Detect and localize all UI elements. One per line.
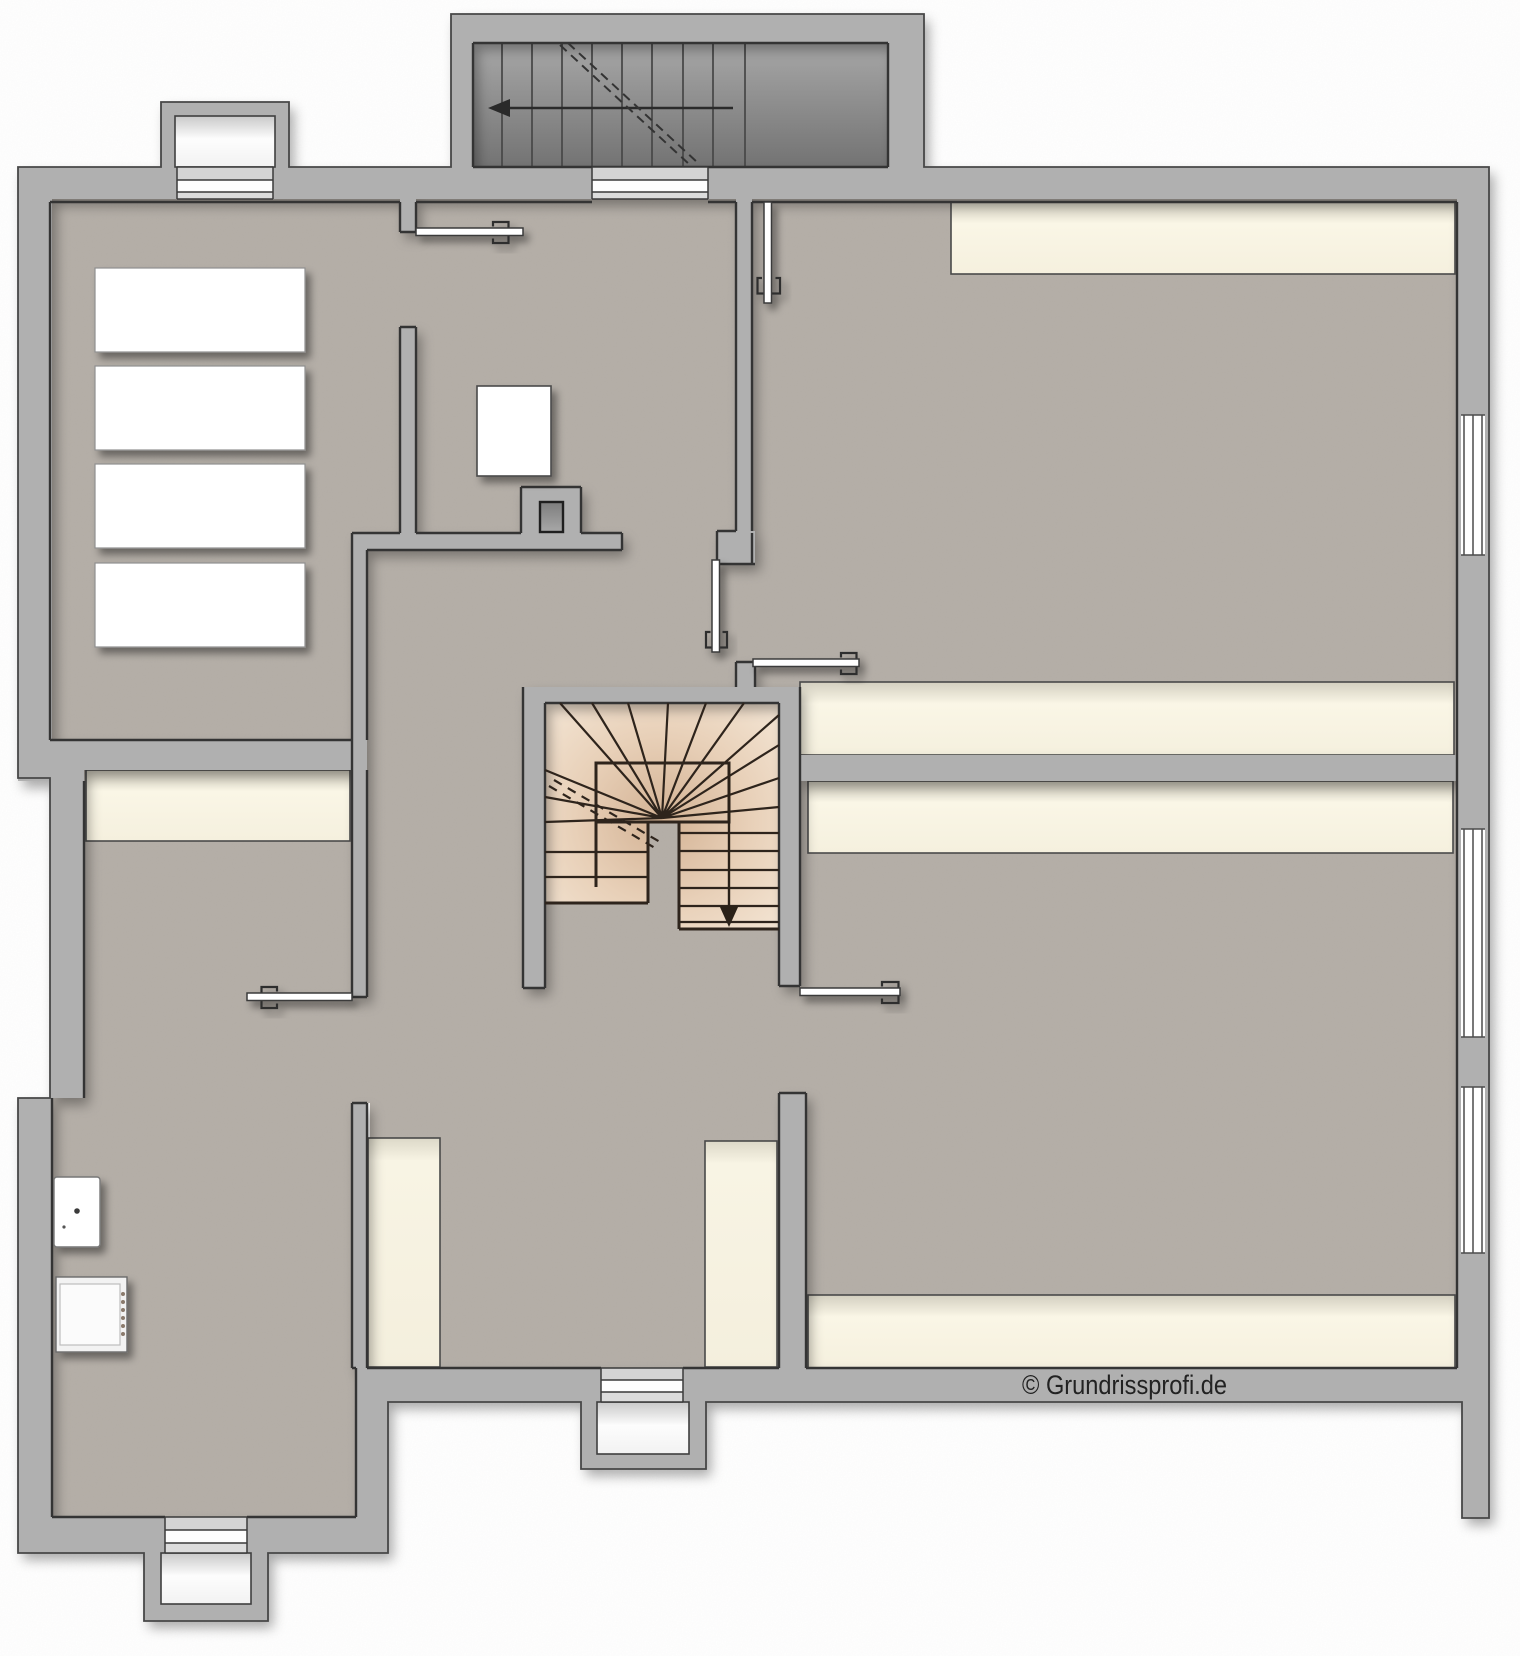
svg-text:© Grundrissprofi.de: © Grundrissprofi.de xyxy=(1022,1370,1227,1400)
